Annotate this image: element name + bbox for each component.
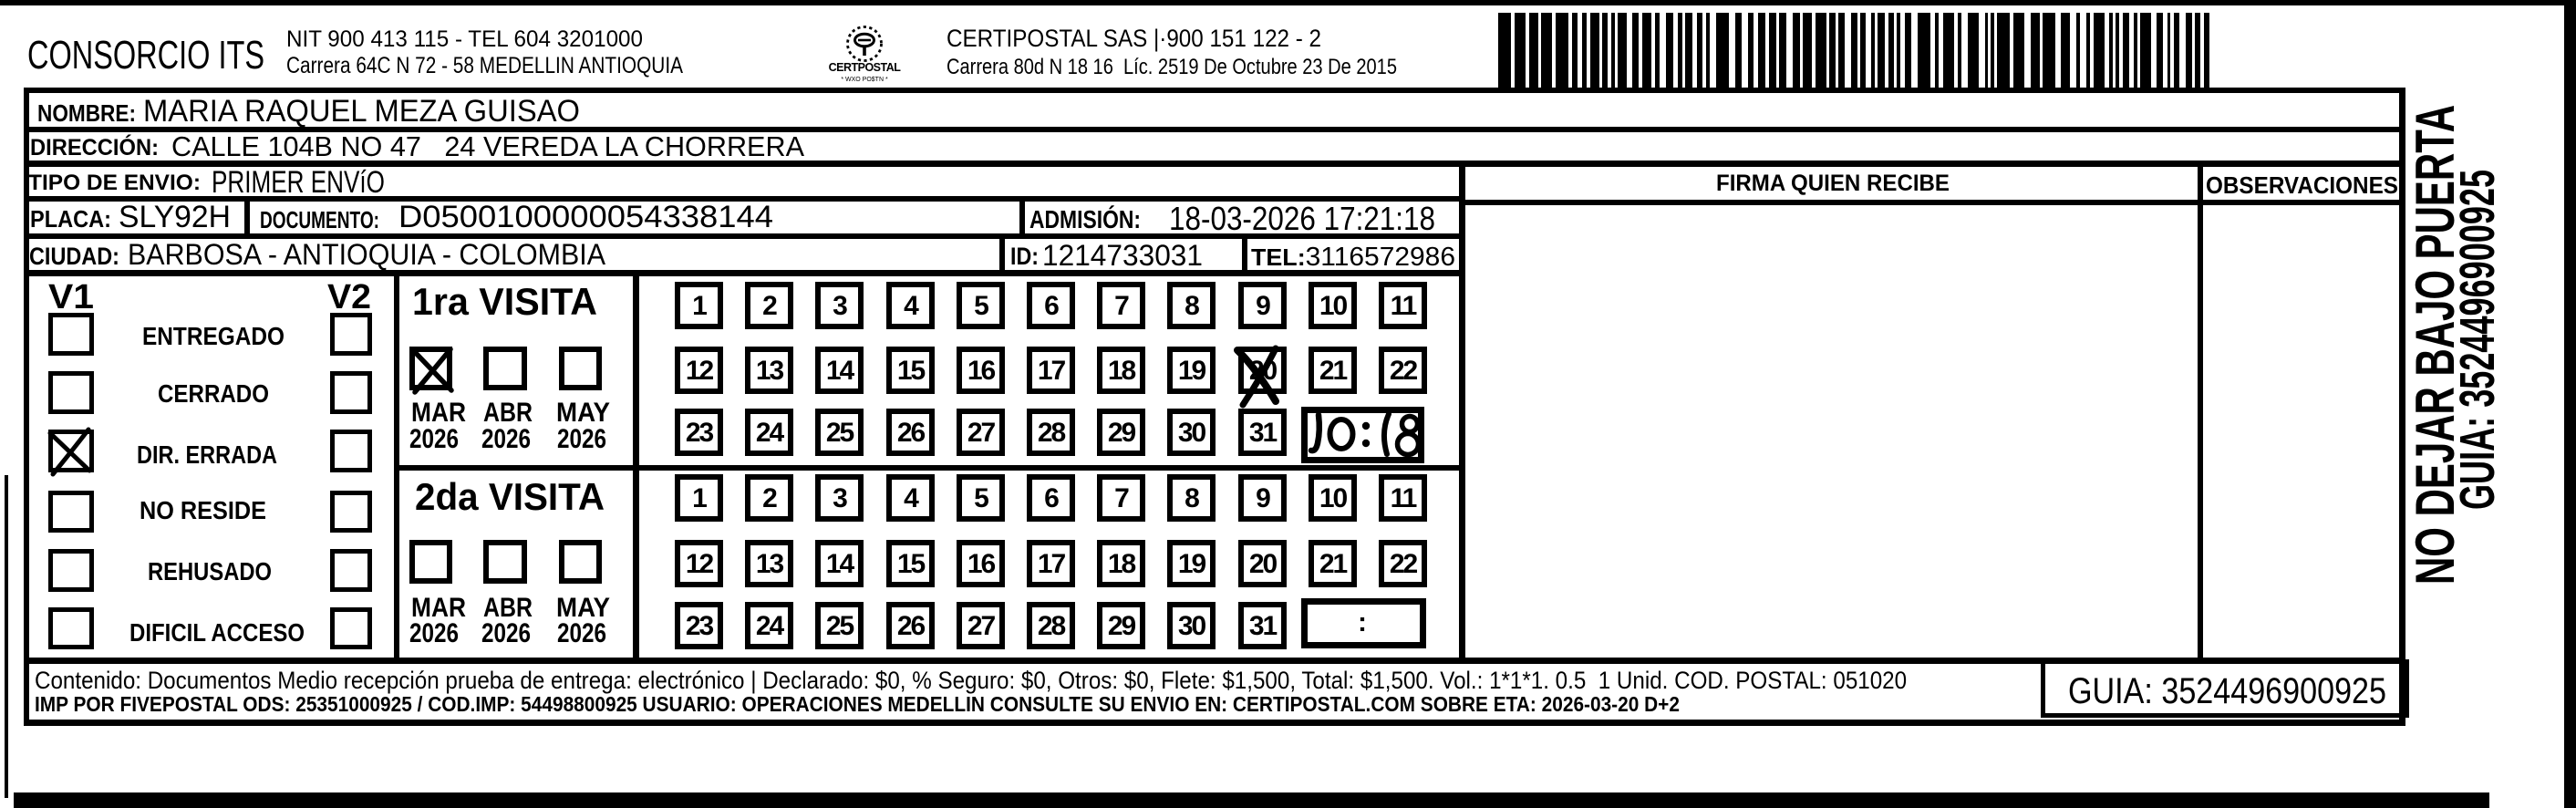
svg-text:* WXO PO$TN *: * WXO PO$TN *	[841, 77, 888, 83]
svg-text:CERTPOSTAL: CERTPOSTAL	[829, 61, 902, 74]
